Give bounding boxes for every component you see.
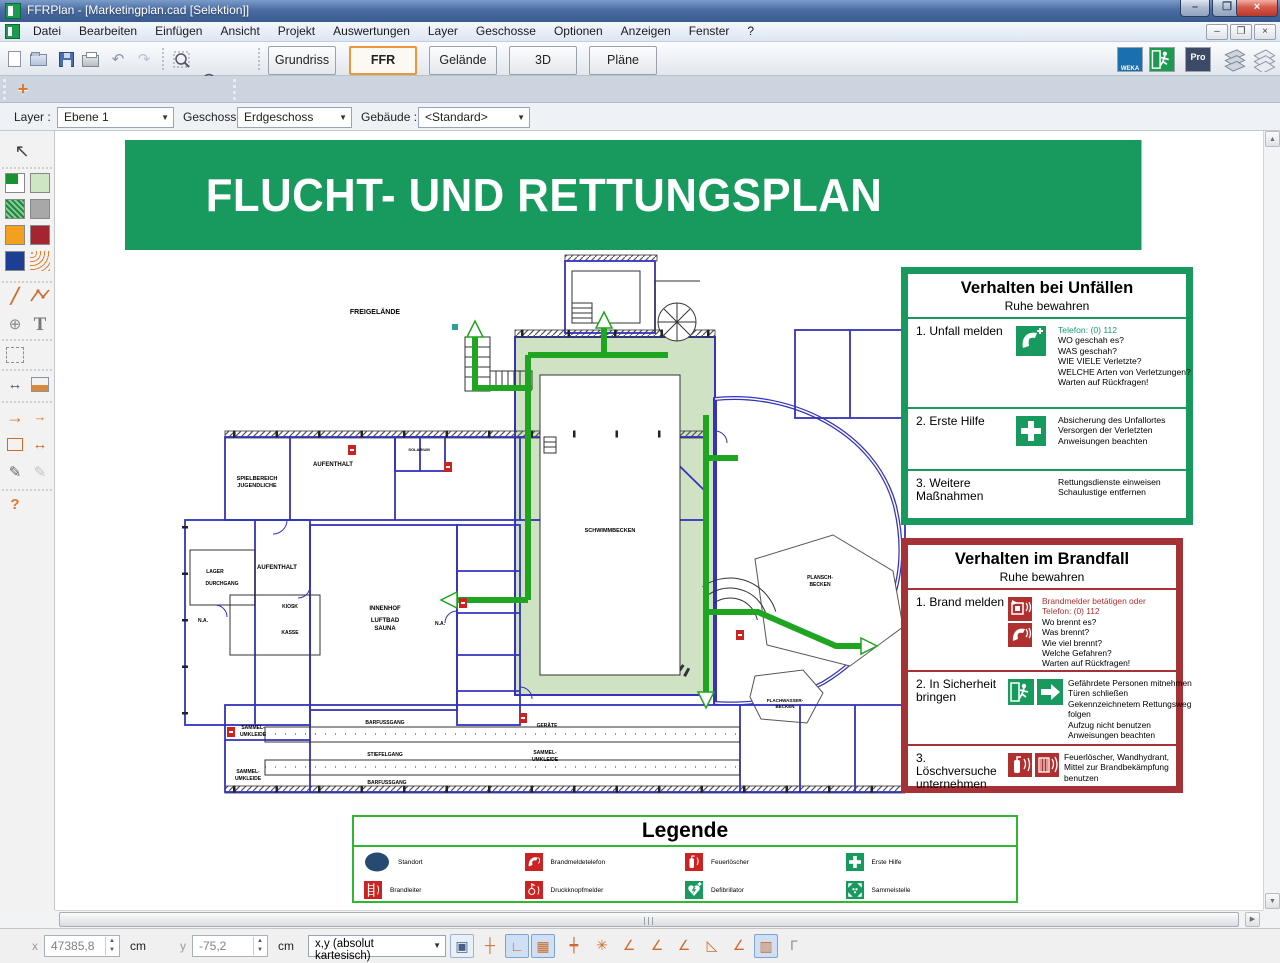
geschoss-label: Geschoss: [183, 110, 236, 124]
snap-star-toggle[interactable]: ✳: [590, 934, 614, 958]
menu-datei[interactable]: Datei: [24, 22, 70, 40]
menu-anzeigen[interactable]: Anzeigen: [612, 22, 680, 40]
scroll-corner: [0, 910, 55, 928]
legend-item: Druckknopfmelder: [525, 879, 686, 901]
hatch-toggle[interactable]: ◺: [700, 934, 724, 958]
tab-plaene[interactable]: Pläne: [589, 46, 657, 75]
select-tool[interactable]: ↖: [10, 139, 34, 163]
dimension-arrow-tool[interactable]: ↔: [28, 433, 52, 457]
edit-toolbar: +: [0, 76, 1280, 103]
tab-ffr[interactable]: FFR: [349, 46, 417, 75]
scroll-right-icon[interactable]: ▶: [1245, 912, 1260, 927]
weka-logo[interactable]: WEKA: [1117, 47, 1143, 72]
legend-item: Defibrillator: [685, 879, 846, 901]
rect-arrow-tool[interactable]: [3, 433, 27, 457]
fire-panel: Verhalten im Brandfall Ruhe bewahren 1. …: [901, 538, 1183, 793]
x-unit: cm: [130, 939, 146, 953]
gebaeude-label: Gebäude :: [361, 110, 417, 124]
svg-text:PLANSCH-: PLANSCH-: [807, 575, 833, 581]
accident-subtitle: Ruhe bewahren: [908, 299, 1186, 313]
dot-fill-tool[interactable]: [30, 251, 50, 271]
wall-green-tool[interactable]: [5, 173, 25, 193]
y-unit: cm: [278, 939, 294, 953]
main-toolbar: ↶ ↷ Grundriss FFR Gelände 3D Pläne WEKA …: [0, 42, 1280, 76]
layers-alt-button[interactable]: [1251, 47, 1277, 72]
svg-text:AUFENTHALT: AUFENTHALT: [257, 565, 297, 571]
tool-palette: ↖ ╱ ⊕ T ↔ → → ↔ ✎ ✎ ?: [0, 131, 55, 928]
svg-text:INNENHOF: INNENHOF: [369, 606, 401, 612]
polyline-tool[interactable]: [28, 285, 52, 309]
exit-man-icon: [1008, 679, 1034, 705]
menu-bearbeiten[interactable]: Bearbeiten: [70, 22, 146, 40]
menu-auswertungen[interactable]: Auswertungen: [324, 22, 419, 40]
angle-globe-toggle[interactable]: ∠: [645, 934, 669, 958]
assembly-point-icon: [846, 881, 864, 899]
mdi-close-button[interactable]: ×: [1254, 24, 1276, 40]
close-button[interactable]: ×: [1236, 0, 1278, 17]
vertical-scrollbar[interactable]: ▲ ▼: [1263, 131, 1280, 910]
push-button-icon: [525, 881, 543, 899]
menu-help[interactable]: ?: [738, 22, 763, 40]
svg-text:N.A.: N.A.: [198, 618, 209, 624]
geschoss-select[interactable]: Erdgeschoss: [237, 107, 352, 128]
svg-text:FLACHWASSER-: FLACHWASSER-: [767, 698, 804, 703]
svg-text:BARFUSSGANG: BARFUSSGANG: [365, 720, 404, 726]
menu-layer[interactable]: Layer: [419, 22, 467, 40]
window-title: FFRPlan - [Marketingplan.cad [Selektion]…: [27, 3, 249, 17]
legend-panel: Legende Standort Brandmeldetelefon Feuer…: [352, 815, 1018, 903]
tab-grundriss[interactable]: Grundriss: [268, 46, 336, 75]
svg-text:FREIGELÄNDE: FREIGELÄNDE: [350, 308, 401, 316]
first-aid-icon: [846, 853, 864, 871]
direction-arrow-icon: [1037, 679, 1063, 705]
svg-text:SAMMEL-: SAMMEL-: [236, 769, 260, 775]
fire-alarm-button-icon: [1008, 597, 1032, 621]
svg-text:AUFENTHALT: AUFENTHALT: [313, 462, 353, 468]
svg-text:KIOSK: KIOSK: [282, 604, 298, 610]
svg-text:UMKLEIDE: UMKLEIDE: [532, 757, 559, 763]
ortho-toggle[interactable]: ∟: [505, 934, 529, 958]
menu-ansicht[interactable]: Ansicht: [211, 22, 268, 40]
first-aid-icon: [1016, 416, 1046, 446]
layer-label: Layer :: [14, 110, 51, 124]
legend-item: Brandleiter: [364, 879, 525, 901]
defibrillator-icon: [685, 881, 703, 899]
arrow-pipe-tool[interactable]: →: [28, 405, 52, 429]
horizontal-scroll-thumb[interactable]: [59, 912, 1239, 927]
svg-text:SPIELBEREICH: SPIELBEREICH: [237, 476, 278, 482]
blue-fill-tool[interactable]: [5, 251, 25, 271]
svg-text:DURCHGANG: DURCHGANG: [205, 581, 238, 587]
snap-center-toggle[interactable]: ┿: [562, 934, 586, 958]
filter-bar: Layer : Ebene 1 Geschoss Erdgeschoss Geb…: [0, 103, 1280, 131]
room-fill-tool[interactable]: [30, 173, 50, 193]
menu-einfuegen[interactable]: Einfügen: [146, 22, 211, 40]
coordinate-mode-select[interactable]: x,y (absolut kartesisch): [308, 935, 446, 957]
emergency-phone-icon: [1016, 326, 1046, 356]
y-coordinate-input[interactable]: -75,2 ▲▼: [192, 935, 268, 957]
extinguisher-icon: [685, 853, 703, 871]
menu-projekt[interactable]: Projekt: [269, 22, 324, 40]
dimension-tool[interactable]: ↔: [3, 373, 27, 397]
svg-text:KASSE: KASSE: [281, 630, 299, 636]
redo-button[interactable]: ↷: [134, 50, 154, 70]
document-icon: [5, 24, 20, 39]
zoom-window-icon[interactable]: [172, 51, 192, 71]
layers-button[interactable]: [1221, 47, 1247, 72]
angle-x-toggle[interactable]: ∠: [672, 934, 696, 958]
svg-text:SOLARIUM: SOLARIUM: [408, 447, 430, 452]
status-bar: x 47385,8 ▲▼ cm y -75,2 ▲▼ cm x,y (absol…: [0, 928, 1280, 963]
image-tool[interactable]: [28, 373, 52, 397]
mdi-restore-button[interactable]: ❐: [1230, 24, 1252, 40]
minimize-button[interactable]: –: [1180, 0, 1210, 17]
svg-text:GERÄTE: GERÄTE: [537, 722, 559, 729]
ladder-icon: [364, 881, 382, 899]
accident-panel: Verhalten bei Unfällen Ruhe bewahren 1. …: [901, 267, 1193, 525]
pipette-tool[interactable]: ✎: [3, 461, 27, 485]
pro-button[interactable]: Pro: [1185, 47, 1211, 72]
text-tool[interactable]: T: [28, 313, 52, 337]
wall-hatch-tool[interactable]: [5, 199, 25, 219]
hydrant-icon: [1035, 753, 1059, 777]
mdi-minimize-button[interactable]: –: [1206, 24, 1228, 40]
menu-fenster[interactable]: Fenster: [680, 22, 739, 40]
svg-text:STIEFELGANG: STIEFELGANG: [367, 752, 403, 758]
menu-geschosse[interactable]: Geschosse: [467, 22, 545, 40]
title-bar: FFRPlan - [Marketingplan.cad [Selektion]…: [0, 0, 1280, 22]
extinguisher-icon: [1008, 753, 1032, 777]
legend-item: Sammelstelle: [846, 879, 1007, 901]
layer-select[interactable]: Ebene 1: [57, 107, 174, 128]
red-fill-tool[interactable]: [30, 225, 50, 245]
measure-help-tool[interactable]: ?: [3, 493, 27, 517]
svg-text:SAMMEL-: SAMMEL-: [533, 750, 557, 756]
escape-arrow-tool[interactable]: →: [3, 405, 27, 429]
svg-text:SCHWIMMBECKEN: SCHWIMMBECKEN: [585, 528, 636, 534]
fire-phone-icon: [525, 853, 543, 871]
scroll-up-icon[interactable]: ▲: [1265, 131, 1280, 147]
menu-bar: DateiBearbeitenEinfügenAnsichtProjektAus…: [0, 22, 1280, 42]
pointer-input-toggle[interactable]: ▣: [450, 934, 474, 958]
legend-item: Standort: [364, 851, 525, 873]
location-icon: [364, 852, 390, 872]
grid-toggle[interactable]: ▦: [531, 934, 555, 958]
gray-fill-tool[interactable]: [30, 199, 50, 219]
legend-item: Erste Hilfe: [846, 851, 1007, 873]
tab-3d[interactable]: 3D: [509, 46, 577, 75]
save-button[interactable]: [56, 50, 76, 70]
circle-tool[interactable]: ⊕: [3, 313, 27, 337]
legend-item: Brandmeldetelefon: [525, 851, 686, 873]
exit-sign-button[interactable]: [1149, 47, 1175, 72]
open-file-button[interactable]: [30, 50, 50, 70]
svg-text:BECKEN: BECKEN: [809, 582, 831, 588]
x-label: x: [32, 939, 38, 953]
scroll-down-icon[interactable]: ▼: [1265, 893, 1280, 909]
svg-text:UMKLEIDE: UMKLEIDE: [240, 732, 267, 738]
locker-rows: [265, 734, 740, 767]
accident-title: Verhalten bei Unfällen: [908, 279, 1186, 298]
svg-text:BECKEN: BECKEN: [775, 704, 794, 709]
fire-title: Verhalten im Brandfall: [908, 550, 1176, 569]
legend-title: Legende: [354, 817, 1016, 847]
horizontal-scrollbar[interactable]: ▶: [55, 910, 1263, 928]
angle-dyn-toggle[interactable]: ∠: [617, 934, 641, 958]
orange-fill-tool[interactable]: [5, 225, 25, 245]
new-file-button[interactable]: [4, 50, 24, 70]
svg-text:N.A.: N.A.: [435, 621, 446, 627]
app-icon: [5, 3, 21, 19]
line-tool[interactable]: ╱: [3, 285, 27, 309]
svg-text:BARFUSSGANG: BARFUSSGANG: [367, 780, 406, 786]
undo-button[interactable]: ↶: [108, 50, 128, 70]
menu-optionen[interactable]: Optionen: [545, 22, 612, 40]
tab-gelaende[interactable]: Gelände: [429, 46, 497, 75]
svg-text:LUFTBAD: LUFTBAD: [371, 618, 400, 624]
scroll-corner2: [1263, 910, 1280, 928]
select-rect-tool[interactable]: [3, 343, 27, 367]
add-icon[interactable]: +: [14, 80, 32, 98]
y-label: y: [180, 939, 186, 953]
svg-text:JUGENDLICHE: JUGENDLICHE: [237, 483, 277, 489]
angle-arrow-toggle[interactable]: ∠: [727, 934, 751, 958]
print-button[interactable]: [82, 50, 102, 70]
svg-text:UMKLEIDE: UMKLEIDE: [235, 776, 262, 782]
pipette-disabled-tool[interactable]: ✎: [28, 461, 52, 485]
gebaeude-select[interactable]: <Standard>: [418, 107, 530, 128]
fire-phone-icon: [1008, 623, 1032, 647]
x-coordinate-input[interactable]: 47385,8 ▲▼: [44, 935, 120, 957]
svg-text:LAGER: LAGER: [206, 569, 224, 575]
corner-ruler-toggle[interactable]: Γ: [782, 934, 806, 958]
legend-item: Feuerlöscher: [685, 851, 846, 873]
svg-text:SAUNA: SAUNA: [374, 626, 396, 632]
fire-subtitle: Ruhe bewahren: [908, 570, 1176, 584]
crosshair-toggle[interactable]: ┼: [478, 934, 502, 958]
drawing-canvas[interactable]: FLUCHT- UND RETTUNGSPLAN: [55, 131, 1263, 910]
svg-text:SAMMEL-: SAMMEL-: [241, 725, 265, 731]
ruler-toggle[interactable]: ▥: [754, 934, 778, 958]
marker-icon: [452, 324, 458, 330]
